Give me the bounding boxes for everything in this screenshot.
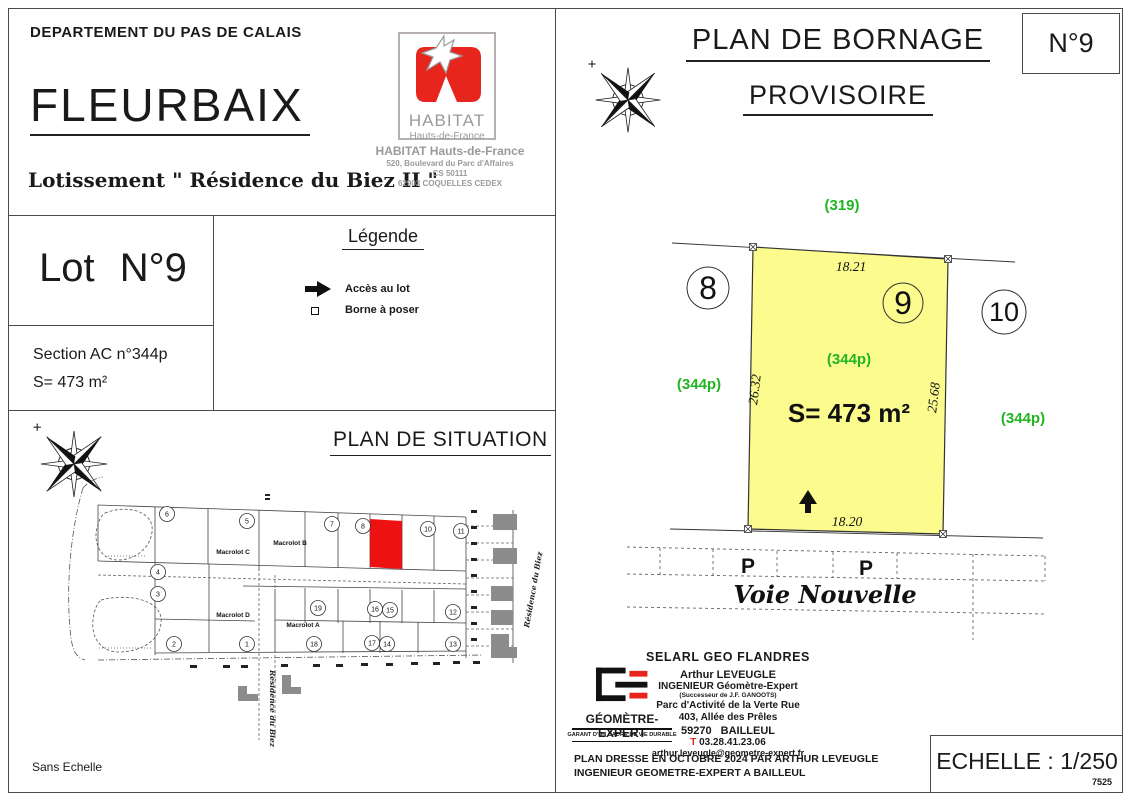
surveyor-successor: (Successeur de J.F. GANOOTS)	[618, 692, 838, 699]
department-label: DEPARTEMENT DU PAS DE CALAIS	[30, 24, 302, 41]
svg-text:1: 1	[245, 642, 249, 649]
svg-text:4: 4	[156, 570, 160, 577]
situation-map: 6 5 7 8 10 11 4 3 19 16 15 12 2 1 18 17 …	[13, 448, 553, 748]
street-name-label: Voie Nouvelle	[733, 580, 916, 609]
svg-text:15: 15	[386, 608, 394, 615]
surveyor-phone-line: T 03.28.41.23.06	[618, 737, 838, 748]
lot-card-title: Lot N°9	[13, 246, 213, 291]
scale-box-top	[930, 735, 1122, 736]
lot-surface-label: S= 473 m²	[33, 374, 107, 392]
map-lot-numbers	[151, 507, 469, 652]
macrolot-d-label: Macrolot D	[216, 612, 250, 619]
surveyor-address-1: Parc d'Activité de la Verte Rue	[618, 700, 838, 711]
sheet-number: N°9	[1048, 28, 1093, 59]
svg-text:7: 7	[330, 522, 334, 529]
north-plus-icon	[34, 424, 41, 431]
street-vertical-label: Résidence du Biez	[268, 669, 277, 748]
lot-card-divider	[9, 325, 214, 326]
pond-shapes	[93, 509, 161, 652]
dim-bottom: 18.20	[832, 514, 863, 529]
sheet-number-box: N°9	[1022, 13, 1120, 74]
bornage-compass	[583, 55, 673, 145]
macrolot-b-label: Macrolot B	[273, 540, 307, 547]
bornage-title-wrap: PLAN DE BORNAGE	[620, 24, 1056, 57]
parking-right-label: P	[859, 557, 873, 580]
lot-section-label: Section AC n°344p	[33, 346, 168, 364]
plan-number: 7525	[1092, 777, 1112, 787]
legend-borne-label: Borne à poser	[345, 304, 419, 316]
svg-text:13: 13	[449, 642, 457, 649]
parcel-surface-label: S= 473 m²	[788, 398, 910, 428]
lot-right-number: 10	[989, 297, 1019, 327]
lot-left-number: 8	[699, 270, 717, 306]
road-lines	[98, 526, 513, 740]
access-arrow-icon	[303, 280, 333, 298]
scale-box-left	[930, 735, 931, 792]
phone-t-icon: T	[690, 737, 696, 748]
site-boundary-lines	[69, 477, 483, 660]
commune-name: FLEURBAIX	[30, 79, 310, 136]
habitat-logo-subtitle: Hauts-de-France	[400, 131, 494, 142]
svg-text:6: 6	[165, 512, 169, 519]
habitat-address-3: 62903 COQUELLES CEDEX	[360, 179, 540, 188]
svg-text:14: 14	[383, 642, 391, 649]
parking-left-label: P	[741, 555, 755, 578]
legend-title: Légende	[342, 226, 424, 250]
legend-title-wrap: Légende	[213, 226, 553, 247]
legend-access-label: Accès au lot	[345, 283, 410, 295]
habitat-address-2: CS 50111	[360, 169, 540, 178]
bornage-drawing: 8 9 10 (319) (344p) (344p) (344p) 18.21 …	[556, 170, 1123, 650]
title-block-divider	[9, 215, 555, 216]
habitat-logo-icon	[400, 34, 494, 110]
svg-text:17: 17	[368, 641, 376, 648]
parcel-center-label: (344p)	[827, 351, 871, 368]
scale-label: ECHELLE : 1/250	[936, 748, 1118, 775]
survey-plan-sheet: DEPARTEMENT DU PAS DE CALAIS FLEURBAIX L…	[0, 0, 1131, 800]
middle-band-divider	[9, 410, 555, 411]
plan-note-2: INGENIEUR GEOMETRE-EXPERT A BAILLEUL	[574, 767, 805, 779]
commune-title: FLEURBAIX	[30, 78, 310, 132]
surveyor-address-3: 59270 BAILLEUL	[618, 725, 838, 737]
svg-text:12: 12	[449, 610, 457, 617]
macrolot-a-label: Macrolot A	[286, 622, 320, 629]
plan-note-1: PLAN DRESSE EN OCTOBRE 2024 PAR ARTHUR L…	[574, 753, 878, 765]
habitat-logo-title: HABITAT	[400, 111, 494, 131]
bornage-subtitle-wrap: PROVISOIRE	[620, 80, 1056, 111]
svg-text:8: 8	[361, 524, 365, 531]
borne-square-icon	[311, 307, 319, 315]
compass-rose-icon	[588, 60, 660, 132]
svg-text:16: 16	[371, 607, 379, 614]
bornage-title: PLAN DE BORNAGE	[686, 24, 990, 62]
scale-note: Sans Echelle	[32, 760, 102, 774]
svg-text:11: 11	[457, 529, 464, 536]
surveyor-address-2: 403, Allée des Prêles	[618, 712, 838, 723]
svg-text:3: 3	[156, 592, 160, 599]
north-plus-icon	[588, 60, 595, 67]
highlighted-lot-9	[370, 519, 402, 569]
dim-top: 18.21	[836, 259, 866, 274]
svg-text:19: 19	[314, 606, 322, 613]
lot-current-number: 9	[894, 285, 912, 321]
habitat-address-1: 520, Boulevard du Parc d'Affaires	[360, 159, 540, 168]
habitat-logo-box: HABITAT Hauts-de-France	[398, 32, 496, 140]
svg-text:18: 18	[310, 642, 318, 649]
svg-text:10: 10	[424, 527, 432, 534]
parcel-left-label: (344p)	[677, 376, 721, 393]
surveyor-company: SELARL GEO FLANDRES	[618, 650, 838, 664]
parcel-right-label: (344p)	[1001, 410, 1045, 427]
surveyor-phone: 03.28.41.23.06	[699, 737, 766, 748]
bornage-subtitle: PROVISOIRE	[743, 80, 933, 116]
surveyor-role: INGENIEUR Géomètre-Expert	[618, 681, 838, 692]
macrolot-c-label: Macrolot C	[216, 549, 250, 556]
street-right-label: Résidence du Biez	[522, 550, 545, 629]
habitat-name: HABITAT Hauts-de-France	[360, 144, 540, 158]
rear-parcel-label: (319)	[824, 197, 859, 214]
svg-text:2: 2	[172, 642, 176, 649]
svg-text:5: 5	[245, 519, 249, 526]
surveyor-name: Arthur LEVEUGLE	[618, 669, 838, 681]
